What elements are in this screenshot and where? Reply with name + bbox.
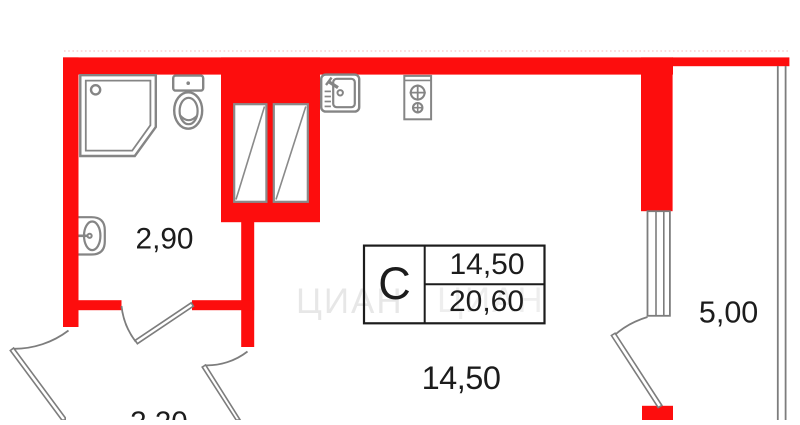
svg-text:3,20: 3,20 — [130, 406, 187, 420]
svg-text:20,60: 20,60 — [449, 285, 524, 318]
svg-text:5,00: 5,00 — [699, 296, 758, 330]
svg-text:14,50: 14,50 — [449, 248, 524, 281]
svg-text:2,90: 2,90 — [136, 222, 194, 255]
svg-text:С: С — [378, 258, 411, 309]
svg-text:14,50: 14,50 — [422, 360, 501, 396]
